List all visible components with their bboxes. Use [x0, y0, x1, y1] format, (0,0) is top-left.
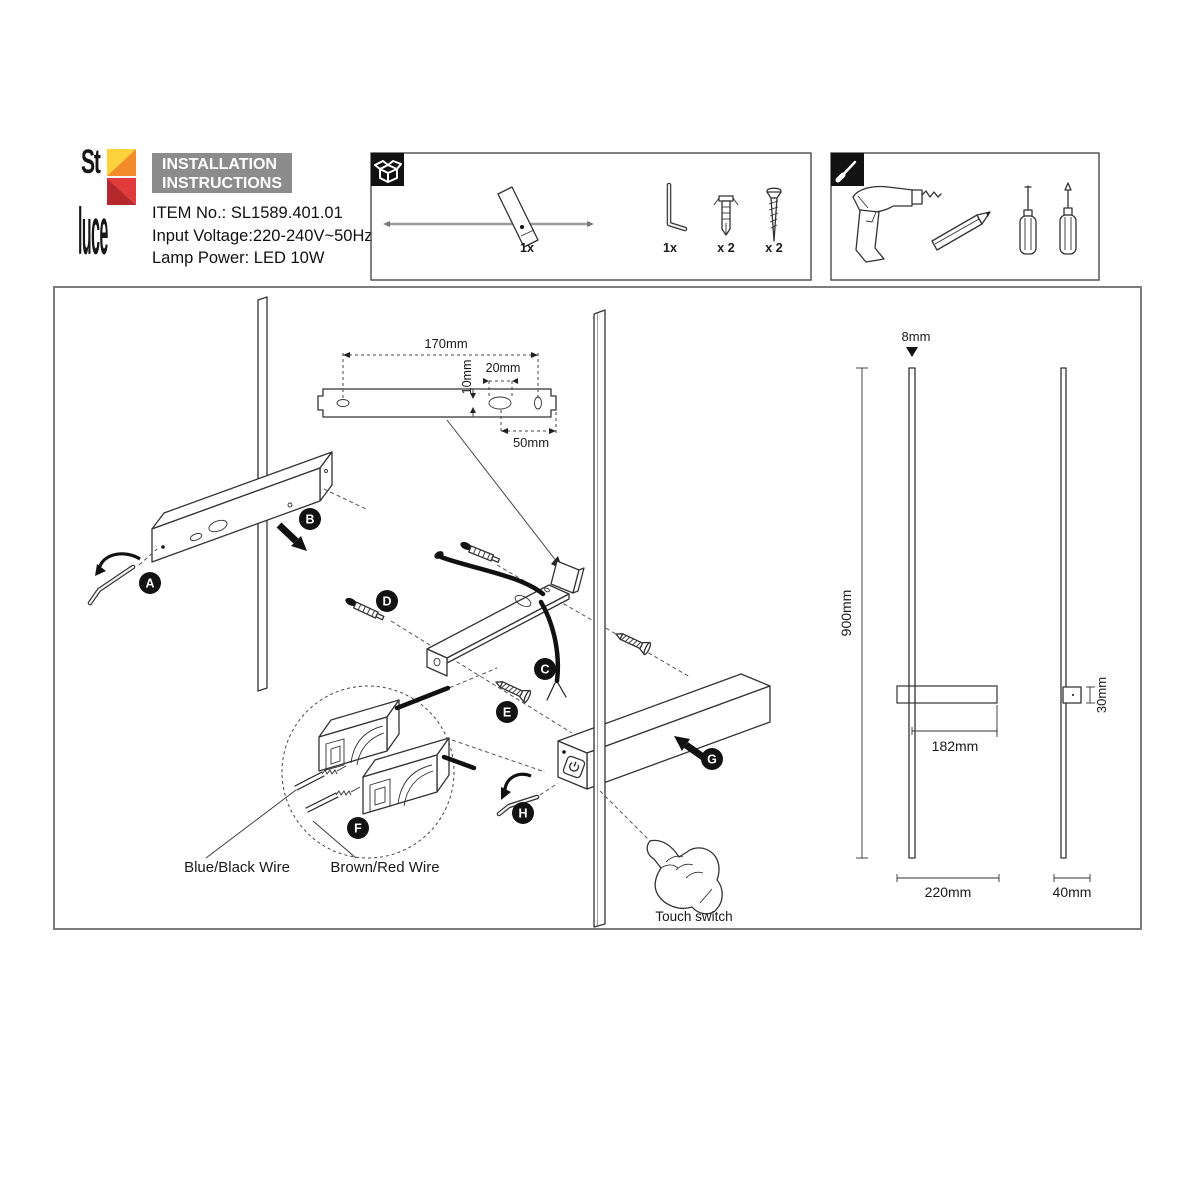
- step-letter-a: A: [145, 577, 154, 591]
- screw-qty-label: x 2: [765, 241, 782, 255]
- phillips-screwdriver-drawing: [1060, 183, 1076, 254]
- dim-body-depth: 30mm: [1094, 677, 1109, 713]
- dim-hole-offset: 10mm: [460, 360, 474, 395]
- dim-bracket-length: 170mm: [424, 336, 467, 351]
- dim-height: 900mm: [838, 590, 854, 637]
- front-view-rod: [909, 368, 915, 858]
- instruction-sheet: St luce INSTALLATION INSTRUCTIONS ITEM N…: [0, 0, 1200, 1200]
- anchor-qty-label: x 2: [717, 241, 734, 255]
- blue-black-wire-label: Blue/Black Wire: [184, 859, 290, 876]
- packaged-screw-drawing: [767, 188, 781, 241]
- touch-switch-label: Touch switch: [655, 909, 732, 924]
- flat-screwdriver-drawing: [1020, 186, 1036, 254]
- step-letter-c: C: [540, 663, 549, 677]
- dim-body-length: 182mm: [932, 738, 979, 754]
- drill-drawing: [853, 186, 941, 262]
- step-letter-d: D: [382, 595, 391, 609]
- dim-width-side: 40mm: [1053, 884, 1092, 900]
- step-letter-g: G: [707, 753, 717, 767]
- tools-box: [831, 153, 1099, 280]
- side-view-screw-dot: [1072, 694, 1074, 696]
- packaged-lamp-drawing: [383, 187, 594, 247]
- step-letter-h: H: [518, 807, 527, 821]
- package-contents-box: 1x 1x x 2: [371, 153, 811, 280]
- hex-key-qty-label: 1x: [663, 241, 677, 255]
- dim-slot-offset: 50mm: [513, 435, 549, 450]
- step-letter-e: E: [503, 706, 511, 720]
- bracket-top-view: [318, 389, 556, 417]
- main-diagram-svg: 1x 1x x 2: [0, 0, 1200, 1200]
- brown-red-wire-label: Brown/Red Wire: [330, 859, 439, 876]
- packaged-hex-key-drawing: [669, 185, 685, 229]
- dim-width-front: 220mm: [925, 884, 972, 900]
- dim-slot-width: 20mm: [486, 361, 521, 375]
- dim-rod-diameter: 8mm: [902, 329, 931, 344]
- lamp-qty-label: 1x: [520, 241, 534, 255]
- step-letter-f: F: [354, 822, 362, 836]
- packaged-anchor-drawing: [714, 196, 738, 235]
- lamp-rod-main: [594, 310, 605, 927]
- pencil-drawing: [932, 212, 990, 250]
- step-letter-b: B: [305, 513, 314, 527]
- side-view-rod: [1061, 368, 1066, 858]
- package-box-border: [371, 153, 811, 280]
